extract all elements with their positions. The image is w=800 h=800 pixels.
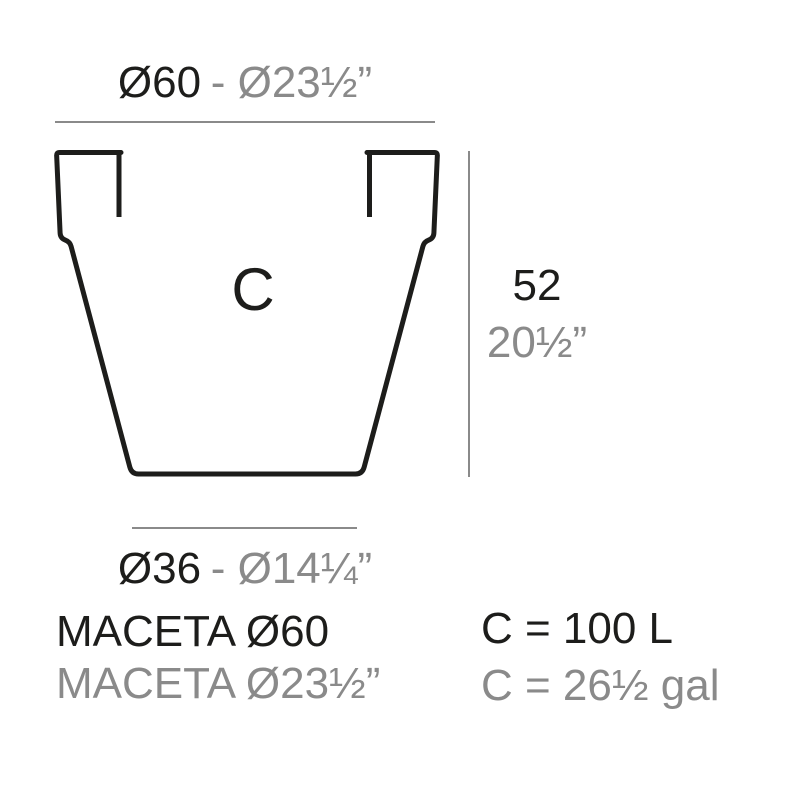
top-dimension-line [55, 121, 435, 123]
height-dimension-line [468, 151, 470, 477]
bottom-diameter-metric: Ø36 [118, 544, 201, 593]
bottom-diameter-imperial: - Ø14¼” [211, 544, 372, 593]
bottom-diameter-label: Ø36- Ø14¼” [55, 547, 435, 591]
capacity-letter: C [203, 260, 303, 320]
height-imperial-label: 20½” [472, 321, 602, 365]
capacity-metric: C = 100 L [481, 607, 673, 651]
height-metric-label: 52 [472, 264, 602, 308]
bottom-dimension-line [132, 527, 357, 529]
capacity-imperial: C = 26½ gal [481, 664, 720, 708]
product-name-imperial: MACETA Ø23½” [56, 662, 380, 706]
top-diameter-imperial: - Ø23½” [211, 58, 372, 107]
top-diameter-label: Ø60- Ø23½” [55, 61, 435, 105]
product-name-metric: MACETA Ø60 [56, 610, 329, 654]
top-diameter-metric: Ø60 [118, 58, 201, 107]
spec-sheet: Ø60- Ø23½” C 52 20½” Ø36- Ø14¼” MACETA Ø… [0, 0, 800, 800]
